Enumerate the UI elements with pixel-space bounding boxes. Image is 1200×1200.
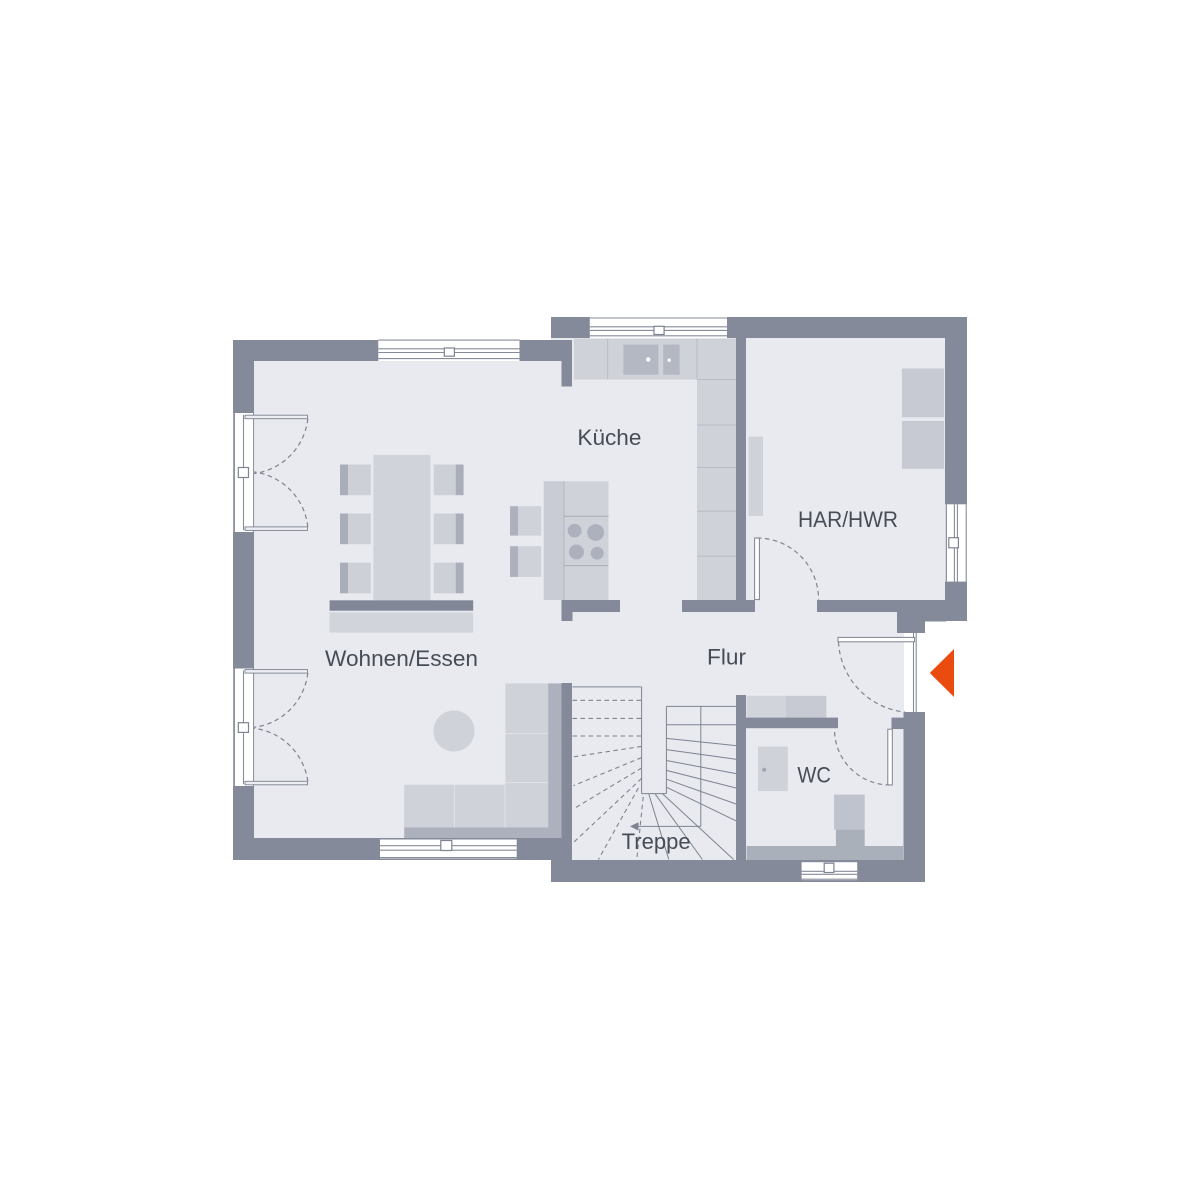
svg-text:Flur: Flur	[707, 645, 747, 670]
svg-text:WC: WC	[797, 762, 831, 787]
svg-text:Treppe: Treppe	[622, 829, 691, 854]
svg-text:Wohnen/Essen: Wohnen/Essen	[325, 646, 478, 671]
svg-text:Küche: Küche	[577, 425, 641, 450]
svg-text:HAR/HWR: HAR/HWR	[798, 507, 898, 532]
